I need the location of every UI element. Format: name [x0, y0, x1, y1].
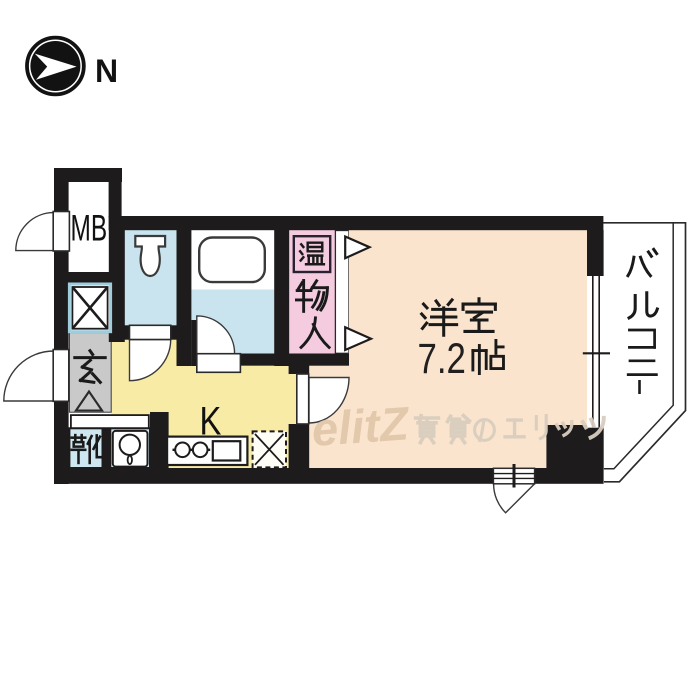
svg-text:7.2: 7.2 [418, 336, 466, 383]
svg-text:K: K [200, 398, 222, 443]
svg-text:N: N [95, 53, 118, 89]
svg-text:elitZ: elitZ [310, 396, 412, 456]
svg-text:MB: MB [71, 207, 108, 248]
